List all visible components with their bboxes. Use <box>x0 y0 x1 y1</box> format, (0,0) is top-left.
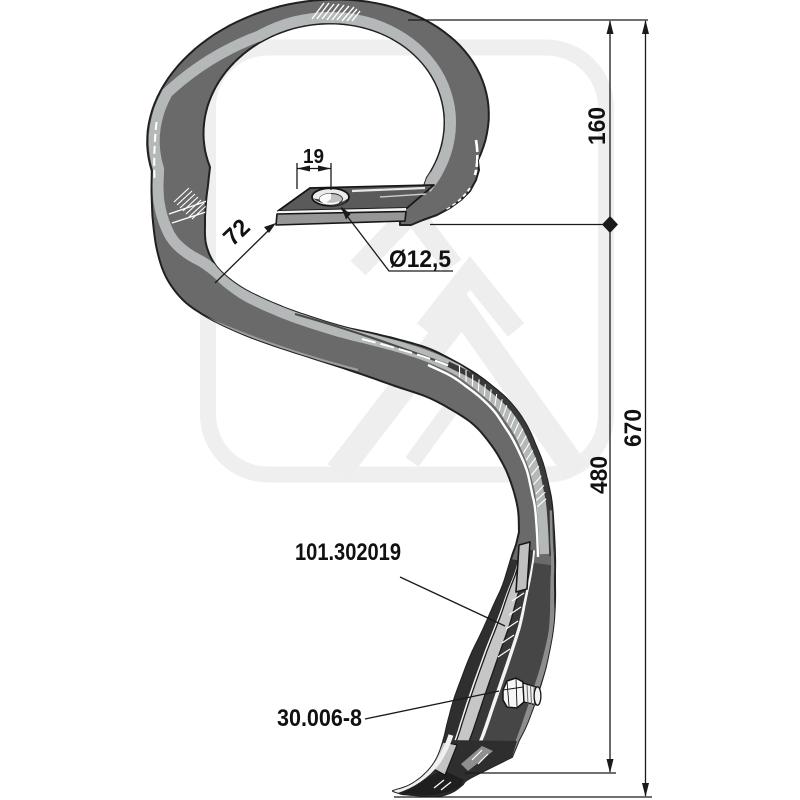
svg-text:480: 480 <box>586 456 613 494</box>
svg-text:101.302019: 101.302019 <box>295 539 401 566</box>
svg-text:670: 670 <box>620 409 647 447</box>
svg-text:19: 19 <box>303 146 324 168</box>
svg-text:160: 160 <box>584 107 611 145</box>
svg-text:30.006-8: 30.006-8 <box>277 705 362 732</box>
svg-text:Ø12,5: Ø12,5 <box>389 246 451 273</box>
